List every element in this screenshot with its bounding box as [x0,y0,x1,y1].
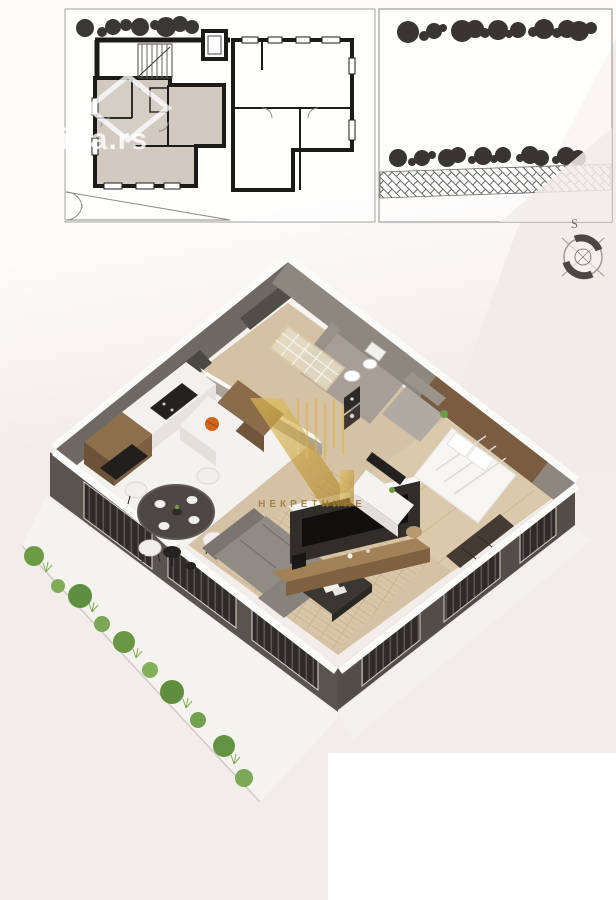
bedside-plant [440,410,448,418]
white-corner-panel [328,753,616,900]
washbasin [344,371,360,382]
dining-chair[interactable] [125,482,147,498]
floor-plan-2d [65,9,375,222]
compass-north-label: S [570,216,579,233]
ida-watermark-text: ida.rs [62,123,148,157]
elevator [203,31,226,59]
garden-plan [379,9,612,222]
dining-chair[interactable] [197,468,219,484]
listing-floorplan-image: ida.rs НЕКРЕТНИНЕ S [0,0,616,900]
terrace-stool[interactable] [186,562,196,570]
agency-watermark-text: НЕКРЕТНИНЕ [232,499,392,510]
table-centerpiece [172,509,182,516]
dining-chair[interactable] [139,540,161,556]
compass-rose [562,238,604,276]
stool[interactable] [406,526,422,538]
